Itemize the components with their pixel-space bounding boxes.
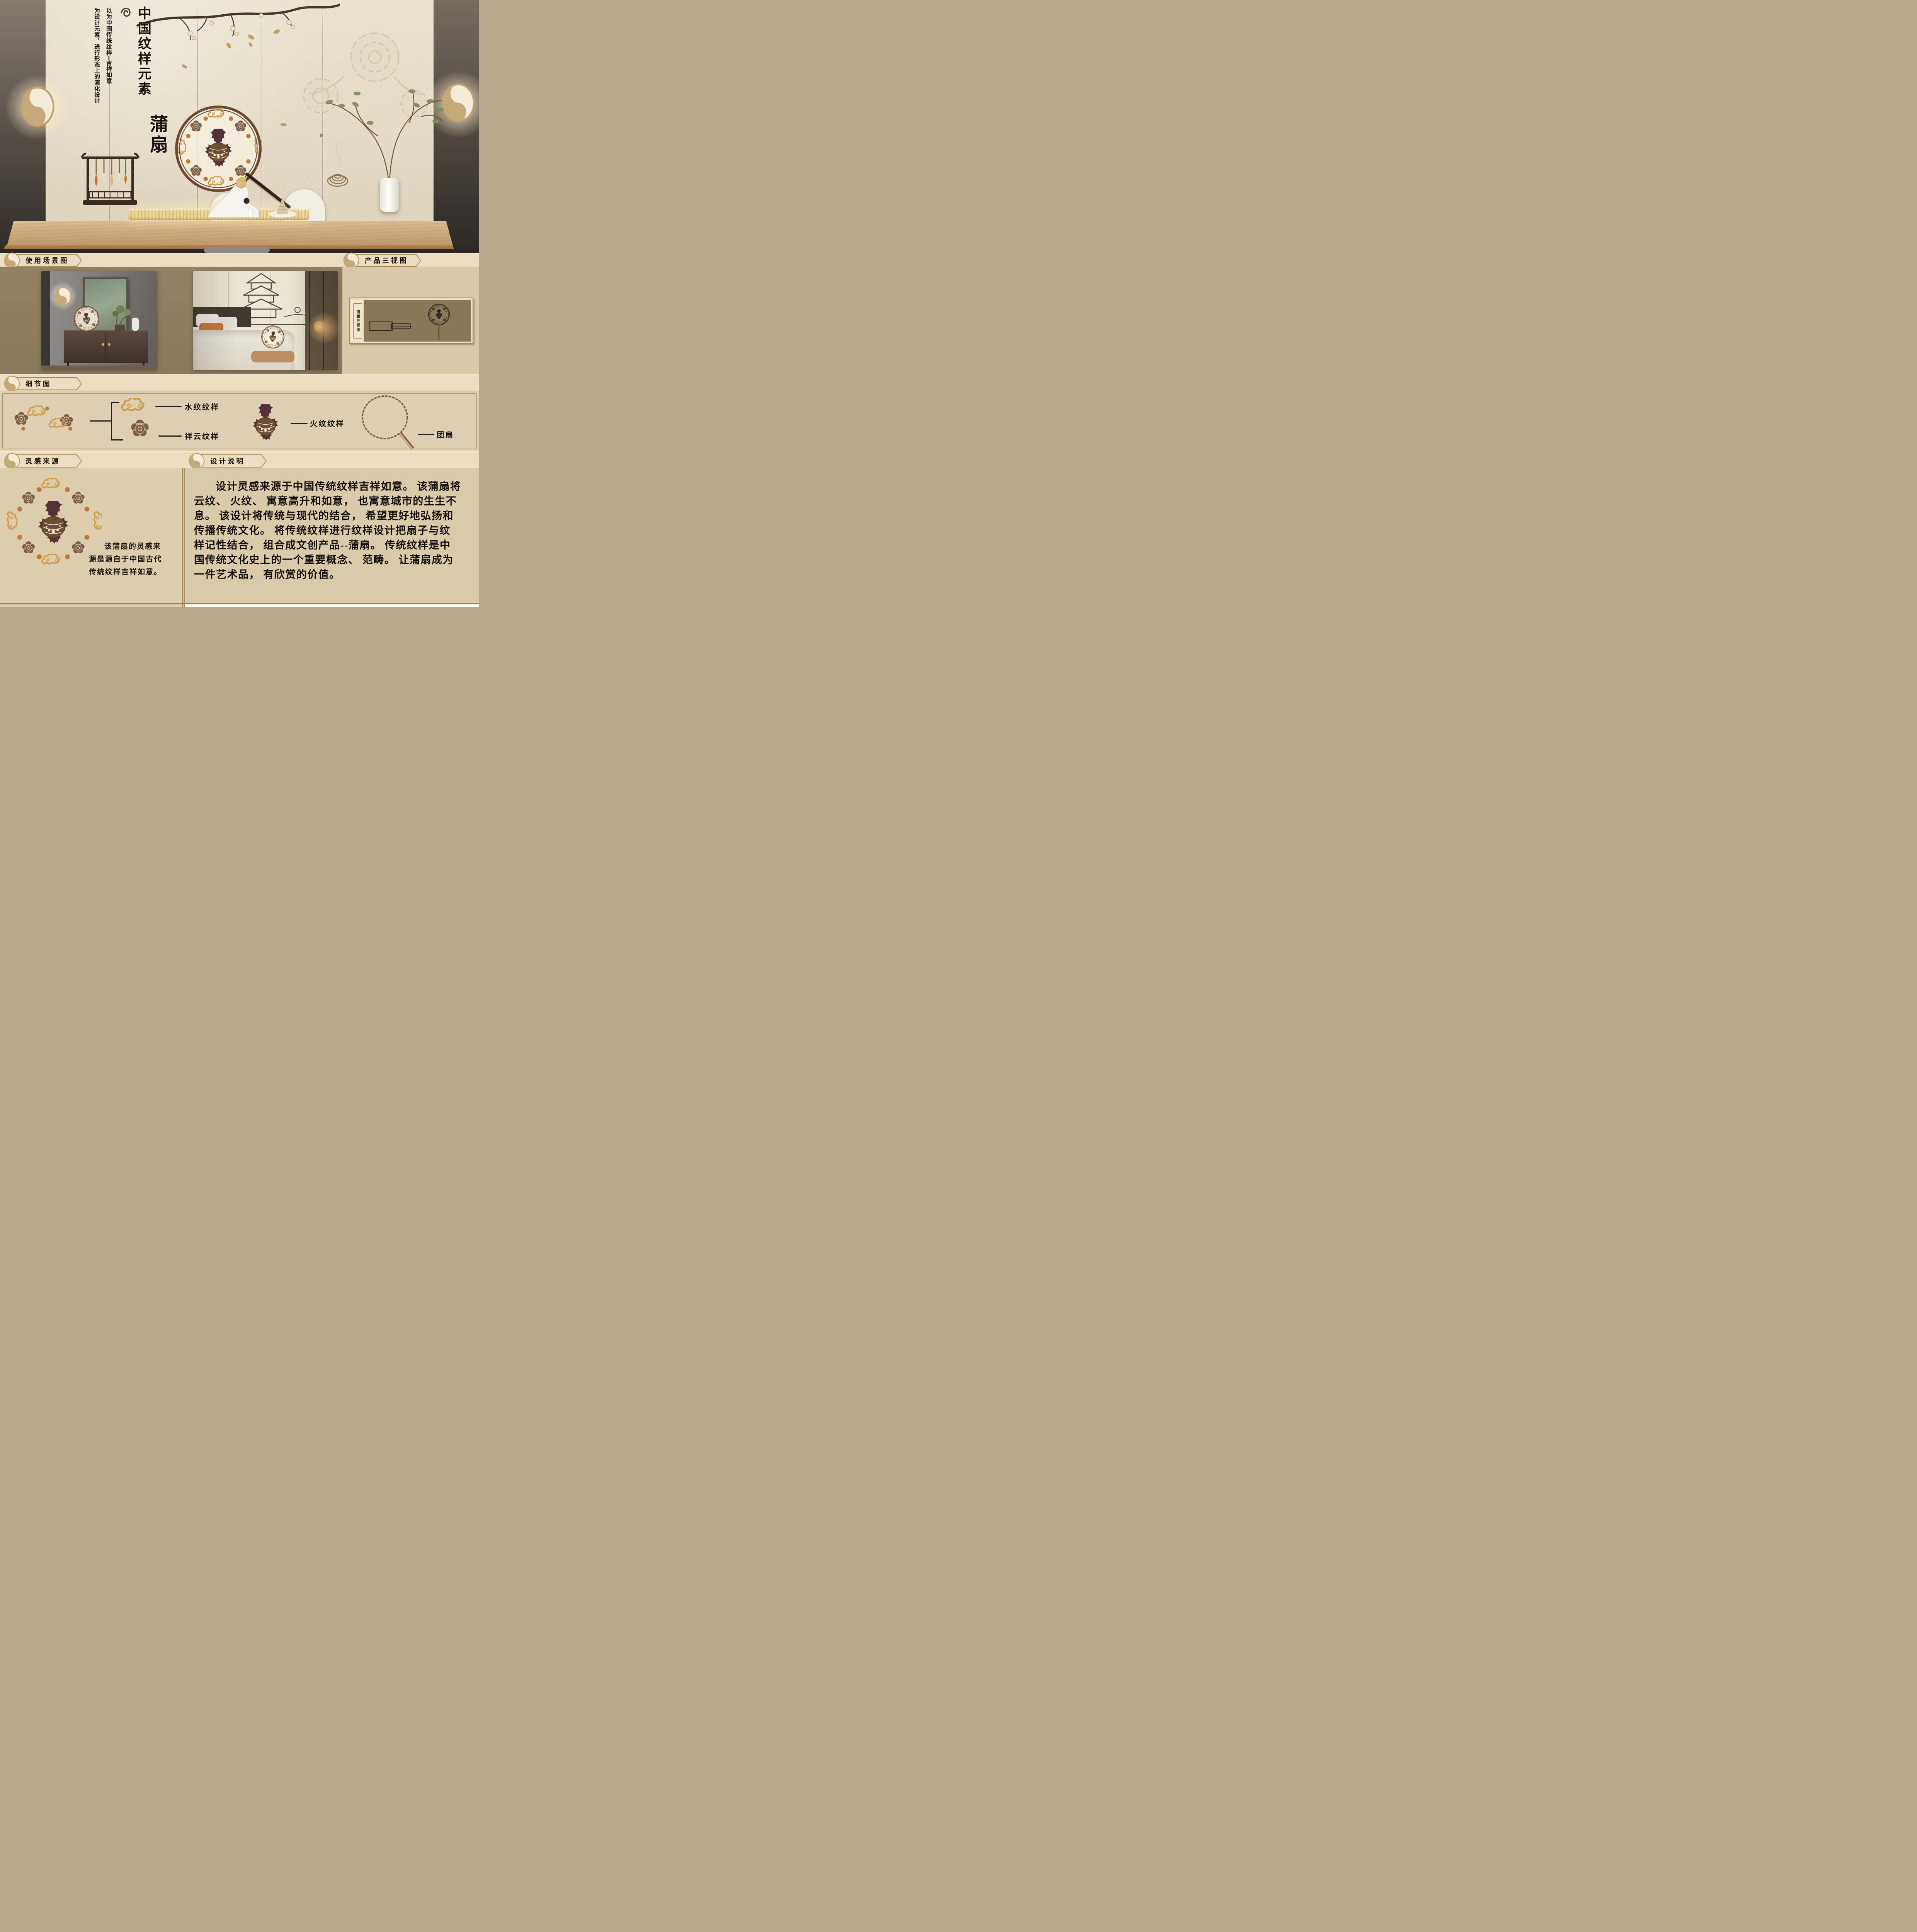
product-name: 蒲扇	[144, 114, 170, 161]
incense-cone-dish	[267, 196, 298, 218]
three-view-badge: 产品三视图	[343, 254, 421, 267]
scene-badge-label: 使用场景图	[26, 256, 69, 265]
label-line	[155, 406, 182, 407]
yinyang-icon	[4, 376, 20, 392]
description-line: 国传统文化史上的一个重要概念、 范畴。 让蒲扇成为	[194, 553, 474, 567]
round-fan-label: 团扇	[437, 429, 454, 440]
inspiration-line: 传统纹样吉祥如意。	[89, 566, 170, 578]
bird-incense-holder	[200, 177, 267, 221]
three-view-badge-label: 产品三视图	[365, 256, 408, 265]
stool	[204, 247, 270, 253]
wooden-table	[7, 221, 453, 246]
inspiration-line: 源是源自于中国古代	[89, 553, 170, 566]
water-pattern-label: 水纹纹样	[185, 401, 219, 412]
description-badge-label: 设计说明	[210, 456, 245, 466]
inspiration-badge: 灵感来源	[4, 454, 82, 468]
usage-scene-photo-1	[41, 271, 157, 370]
bracket-line	[90, 420, 112, 422]
yinyang-wall-lamp-right	[441, 83, 475, 123]
design-description-text: 设计灵感来源于中国传统纹样吉祥如意。 该蒲扇将 云纹、 火纹、 寓意高升和如意，…	[194, 479, 474, 582]
cloud-pattern-label: 祥云纹样	[185, 430, 219, 441]
description-line: 样记性结合， 组合成文创产品--蒲扇。 传统纹样是中	[194, 538, 474, 553]
design-annotation: 以为中国传统纹样--吉祥如意 为设计元素，进行形态上的演化设计	[89, 8, 114, 115]
bracket-line	[111, 439, 123, 440]
description-line: 云纹、 火纹、 寓意高升和如意， 也寓意城市的生生不	[194, 494, 474, 509]
front-view-fan-drawing	[428, 304, 450, 325]
plant-and-jar	[106, 302, 141, 332]
hero-scene: 以为中国传统纹样--吉祥如意 为设计元素，进行形态上的演化设计 中国纹样元素 蒲…	[0, 0, 479, 253]
poster: 以为中国传统纹样--吉祥如意 为设计元素，进行形态上的演化设计 中国纹样元素 蒲…	[0, 0, 479, 607]
round-fan-outline	[359, 394, 417, 451]
usage-scene-photo-2	[193, 271, 338, 370]
branches-in-vase	[320, 86, 444, 182]
brush-rack	[79, 146, 141, 211]
description-badge: 设计说明	[189, 454, 267, 468]
inspiration-pattern-image	[5, 474, 102, 572]
scene-badge: 使用场景图	[4, 254, 82, 267]
footer-white-strip	[185, 604, 479, 607]
description-line: 一件艺术品， 有欣赏的价值。	[194, 567, 474, 582]
fan-on-sideboard	[73, 305, 101, 333]
fire-pattern-label: 火纹纹样	[310, 417, 345, 429]
yinyang-icon	[189, 453, 205, 469]
white-vase	[380, 178, 399, 212]
yinyang-icon	[4, 252, 20, 269]
inspiration-badge-label: 灵感来源	[26, 456, 60, 466]
fire-pattern-motif	[242, 404, 289, 441]
three-view-drawing-area	[364, 300, 471, 342]
inspiration-line: 该蒲扇的灵感来	[89, 540, 170, 553]
side-view-drawing	[369, 321, 393, 331]
section-divider	[182, 468, 185, 607]
poster-title: 中国纹样元素	[134, 6, 153, 97]
details-badge: 细节图	[4, 377, 82, 390]
details-badge-label: 细节图	[26, 379, 52, 389]
inspiration-text: 该蒲扇的灵感来 源是源自于中国古代 传统纹样吉祥如意。	[89, 540, 170, 578]
water-cloud-motif	[118, 398, 154, 417]
label-line	[291, 423, 308, 424]
yinyang-lamp-small	[54, 287, 71, 306]
three-view-panel: 蒲扇三视图	[349, 298, 473, 344]
yinyang-wall-lamp-left	[20, 86, 55, 128]
label-line	[158, 435, 182, 437]
auspicious-cloud-motif	[123, 417, 157, 440]
description-line: 设计灵感来源于中国传统纹样吉祥如意。 该蒲扇将	[194, 479, 474, 494]
side-view-handle-drawing	[391, 323, 411, 329]
description-line: 息。 该设计将传统与现代的结合， 希望更好地弘扬和	[194, 509, 474, 523]
label-line	[418, 434, 434, 435]
yinyang-icon	[343, 252, 359, 269]
front-view-handle-drawing	[439, 325, 439, 340]
water-pattern-motif	[12, 404, 81, 433]
three-view-panel-label: 蒲扇三视图	[353, 303, 362, 339]
three-view-side-strip: 蒲扇三视图	[351, 300, 364, 342]
annotation-column-2: 为设计元素，进行形态上的演化设计	[90, 8, 102, 115]
description-line: 传播传统文化。 将传统纹样进行纹样设计把扇子与纹	[194, 523, 474, 538]
annotation-column-1: 以为中国传统纹样--吉祥如意	[102, 8, 114, 115]
yinyang-icon	[4, 453, 20, 469]
